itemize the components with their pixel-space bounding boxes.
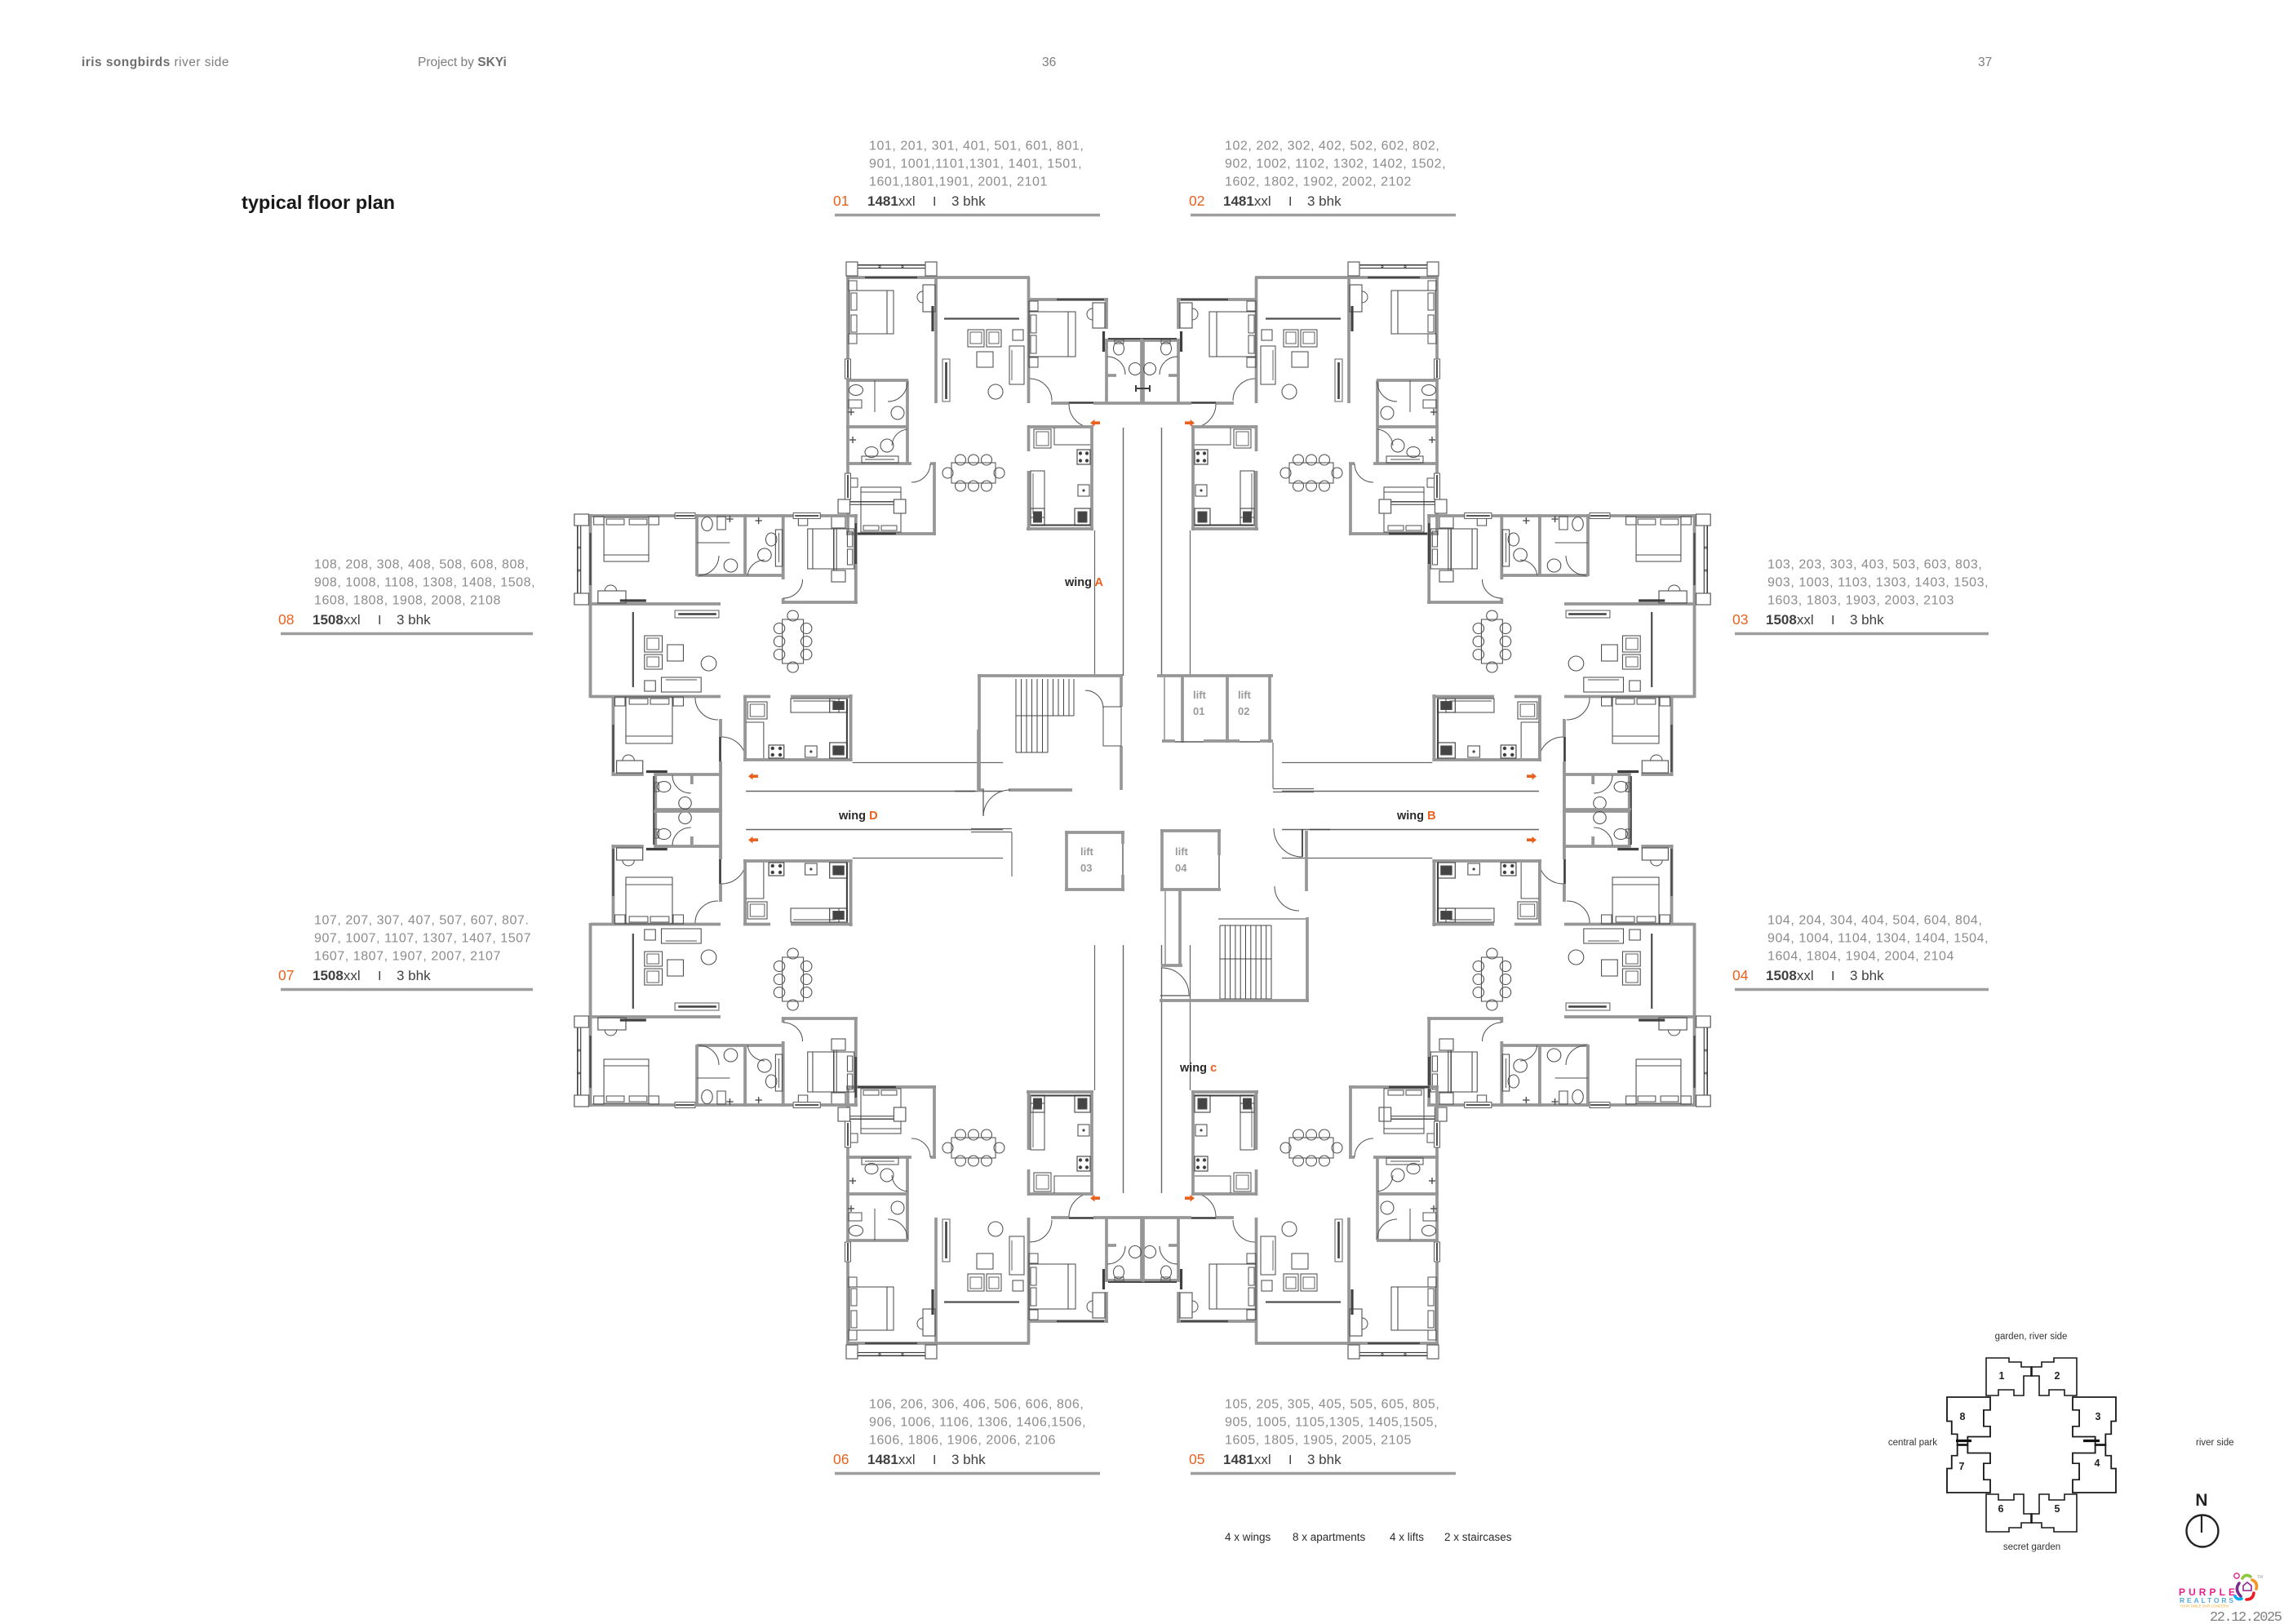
svg-text:01: 01 xyxy=(833,193,849,209)
svg-text:I: I xyxy=(378,614,381,628)
svg-text:1: 1 xyxy=(1999,1370,2005,1382)
svg-text:2: 2 xyxy=(2055,1370,2060,1382)
svg-text:1601,1801,1901, 2001, 2101: 1601,1801,1901, 2001, 2101 xyxy=(869,175,1048,189)
svg-text:REALTORS: REALTORS xyxy=(2180,1596,2233,1604)
svg-text:4 x wings: 4 x wings xyxy=(1225,1531,1271,1543)
svg-text:3 bhk: 3 bhk xyxy=(1850,612,1884,628)
svg-text:1481xxl: 1481xxl xyxy=(1223,193,1271,209)
svg-text:1606, 1806, 1906, 2006, 2106: 1606, 1806, 1906, 2006, 2106 xyxy=(869,1434,1056,1448)
svg-text:1608, 1808, 1908, 2008, 2108: 1608, 1808, 1908, 2008, 2108 xyxy=(314,594,501,608)
svg-text:1508xxl: 1508xxl xyxy=(313,612,361,628)
svg-text:1607, 1807, 1907, 2007, 2107: 1607, 1807, 1907, 2007, 2107 xyxy=(314,950,501,964)
svg-text:I: I xyxy=(1831,970,1834,983)
svg-text:typical floor plan: typical floor plan xyxy=(242,192,395,213)
svg-text:5: 5 xyxy=(2055,1503,2060,1515)
svg-text:lift: lift xyxy=(1175,845,1189,858)
svg-text:1604, 1804, 1904, 2004, 2104: 1604, 1804, 1904, 2004, 2104 xyxy=(1767,950,1954,964)
svg-text:901, 1001,1101,1301, 1401, 150: 901, 1001,1101,1301, 1401, 1501, xyxy=(869,158,1082,171)
svg-text:6: 6 xyxy=(1998,1503,2004,1515)
svg-text:lift: lift xyxy=(1080,845,1094,858)
svg-text:3: 3 xyxy=(2096,1411,2101,1422)
svg-text:I: I xyxy=(1831,614,1834,628)
svg-text:902, 1002, 1102, 1302, 1402, 1: 902, 1002, 1102, 1302, 1402, 1502, xyxy=(1225,158,1446,171)
svg-text:3 bhk: 3 bhk xyxy=(951,193,986,209)
svg-text:01: 01 xyxy=(1193,705,1204,717)
svg-text:lift: lift xyxy=(1238,689,1252,701)
svg-text:8: 8 xyxy=(1960,1411,1966,1422)
svg-text:3 bhk: 3 bhk xyxy=(1307,193,1342,209)
svg-text:22.12.2025: 22.12.2025 xyxy=(2210,1610,2282,1624)
svg-text:08: 08 xyxy=(278,611,294,628)
svg-text:YOUR SMILE OUR CONCERN: YOUR SMILE OUR CONCERN xyxy=(2180,1604,2229,1608)
svg-text:I: I xyxy=(378,970,381,983)
svg-text:1602, 1802, 1902, 2002, 2102: 1602, 1802, 1902, 2002, 2102 xyxy=(1225,175,1412,189)
svg-text:2 x staircases: 2 x staircases xyxy=(1444,1531,1512,1543)
svg-text:906, 1006, 1106, 1306, 1406,15: 906, 1006, 1106, 1306, 1406,1506, xyxy=(869,1416,1086,1430)
svg-text:iris songbirds river side: iris songbirds river side xyxy=(82,55,229,69)
svg-text:lift: lift xyxy=(1193,689,1207,701)
svg-text:1481xxl: 1481xxl xyxy=(867,1452,916,1467)
svg-text:I: I xyxy=(1288,195,1292,209)
svg-text:I: I xyxy=(1288,1453,1292,1467)
svg-text:1605, 1805, 1905, 2005, 2105: 1605, 1805, 1905, 2005, 2105 xyxy=(1225,1434,1412,1448)
svg-text:8 x apartments: 8 x apartments xyxy=(1293,1531,1366,1543)
svg-text:TM: TM xyxy=(2257,1575,2263,1580)
svg-text:wing D: wing D xyxy=(838,810,878,823)
svg-text:104, 204, 304, 404, 504, 604,: 104, 204, 304, 404, 504, 604, 804, xyxy=(1767,914,1982,928)
svg-text:wing B: wing B xyxy=(1396,810,1436,823)
svg-text:I: I xyxy=(933,1453,936,1467)
svg-text:908, 1008, 1108, 1308, 1408, 1: 908, 1008, 1108, 1308, 1408, 1508, xyxy=(314,576,535,590)
svg-text:1508xxl: 1508xxl xyxy=(313,968,361,983)
svg-text:wing A: wing A xyxy=(1064,576,1104,589)
svg-text:central park: central park xyxy=(1888,1438,1937,1448)
svg-text:garden, river side: garden, river side xyxy=(1995,1332,2068,1342)
svg-text:1508xxl: 1508xxl xyxy=(1766,968,1814,983)
svg-text:1603, 1803, 1903, 2003, 2103: 1603, 1803, 1903, 2003, 2103 xyxy=(1767,594,1954,608)
svg-text:106, 206, 306, 406, 506, 606,: 106, 206, 306, 406, 506, 606, 806, xyxy=(869,1398,1084,1412)
svg-text:907, 1007, 1107, 1307, 1407, 1: 907, 1007, 1107, 1307, 1407, 1507 xyxy=(314,932,531,946)
svg-text:4 x lifts: 4 x lifts xyxy=(1390,1531,1424,1543)
svg-text:river side: river side xyxy=(2196,1438,2234,1448)
svg-text:1508xxl: 1508xxl xyxy=(1766,612,1814,628)
svg-text:06: 06 xyxy=(833,1451,849,1467)
svg-text:3 bhk: 3 bhk xyxy=(397,968,431,983)
svg-text:1481xxl: 1481xxl xyxy=(1223,1452,1271,1467)
svg-text:107, 207, 307, 407, 507, 607,: 107, 207, 307, 407, 507, 607, 807. xyxy=(314,914,529,928)
svg-text:7: 7 xyxy=(1959,1461,1965,1472)
svg-text:04: 04 xyxy=(1732,967,1749,983)
svg-text:101, 201, 301, 401, 501, 601,: 101, 201, 301, 401, 501, 601, 801, xyxy=(869,140,1084,153)
svg-text:3 bhk: 3 bhk xyxy=(1307,1452,1342,1467)
svg-text:03: 03 xyxy=(1080,862,1092,874)
svg-text:108, 208, 308, 408, 508, 608,: 108, 208, 308, 408, 508, 608, 808, xyxy=(314,558,529,572)
svg-text:3 bhk: 3 bhk xyxy=(951,1452,986,1467)
svg-text:Project by SKYi: Project by SKYi xyxy=(418,55,507,69)
svg-text:105, 205, 305, 405, 505, 605,: 105, 205, 305, 405, 505, 605, 805, xyxy=(1225,1398,1439,1412)
svg-text:04: 04 xyxy=(1175,862,1187,874)
svg-text:905, 1005, 1105,1305, 1405,150: 905, 1005, 1105,1305, 1405,1505, xyxy=(1225,1416,1438,1430)
svg-text:903, 1003, 1103, 1303, 1403, 1: 903, 1003, 1103, 1303, 1403, 1503, xyxy=(1767,576,1989,590)
svg-text:3 bhk: 3 bhk xyxy=(397,612,431,628)
svg-text:36: 36 xyxy=(1042,55,1056,69)
svg-text:02: 02 xyxy=(1189,193,1204,209)
svg-text:secret garden: secret garden xyxy=(2003,1542,2060,1552)
svg-text:3 bhk: 3 bhk xyxy=(1850,968,1884,983)
svg-text:102, 202, 302, 402, 502, 602,: 102, 202, 302, 402, 502, 602, 802, xyxy=(1225,140,1439,153)
svg-text:05: 05 xyxy=(1189,1451,1204,1467)
svg-text:07: 07 xyxy=(278,967,294,983)
svg-text:904, 1004, 1104, 1304, 1404, 1: 904, 1004, 1104, 1304, 1404, 1504, xyxy=(1767,932,1989,946)
svg-text:37: 37 xyxy=(1978,55,1992,69)
svg-text:03: 03 xyxy=(1732,611,1748,628)
svg-text:N: N xyxy=(2195,1491,2207,1510)
svg-text:103, 203, 303, 403, 503, 603,: 103, 203, 303, 403, 503, 603, 803, xyxy=(1767,558,1982,572)
svg-text:wing c: wing c xyxy=(1179,1062,1217,1075)
svg-text:1481xxl: 1481xxl xyxy=(867,193,916,209)
svg-text:4: 4 xyxy=(2095,1458,2100,1469)
svg-text:I: I xyxy=(933,195,936,209)
svg-text:02: 02 xyxy=(1238,705,1249,717)
